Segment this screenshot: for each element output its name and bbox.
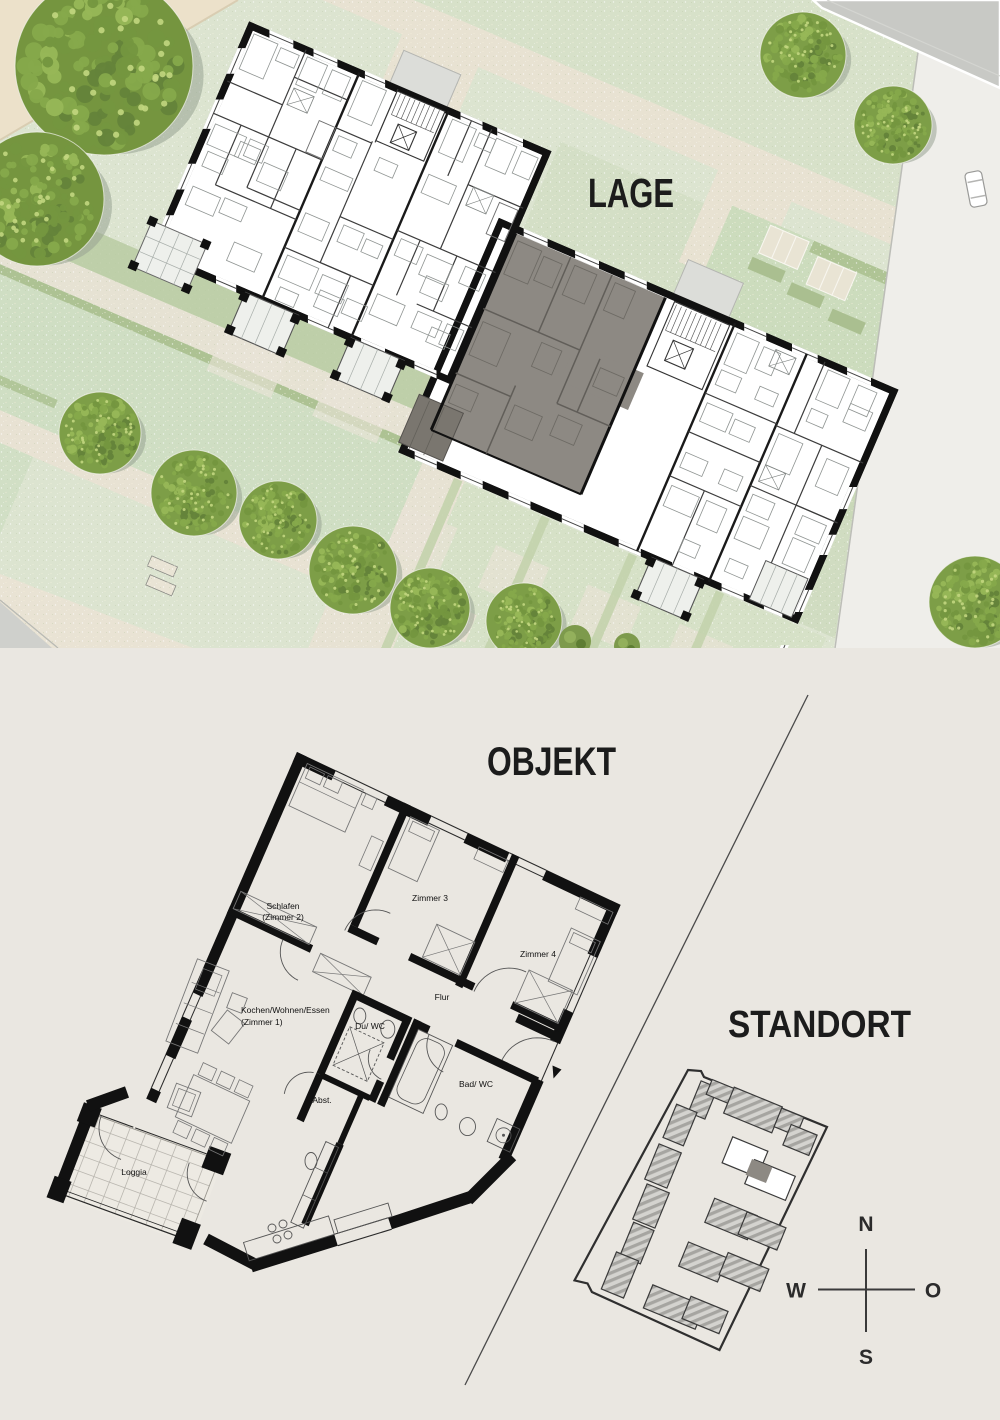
svg-text:Abst.: Abst. xyxy=(312,1095,331,1105)
svg-text:S: S xyxy=(859,1346,873,1369)
svg-text:Kochen/Wohnen/Essen: Kochen/Wohnen/Essen xyxy=(241,1005,330,1015)
svg-text:OBJEKT: OBJEKT xyxy=(487,740,616,784)
svg-text:Zimmer 3: Zimmer 3 xyxy=(412,893,448,903)
svg-text:O: O xyxy=(925,1280,941,1303)
svg-text:W: W xyxy=(786,1280,806,1303)
svg-text:Loggia: Loggia xyxy=(121,1167,147,1177)
svg-text:Bad/ WC: Bad/ WC xyxy=(459,1079,493,1089)
svg-text:Flur: Flur xyxy=(435,992,450,1002)
svg-text:Du/ WC: Du/ WC xyxy=(355,1021,385,1031)
svg-text:LAGE: LAGE xyxy=(588,170,674,216)
svg-text:STANDORT: STANDORT xyxy=(728,1004,911,1046)
svg-text:Schlafen: Schlafen xyxy=(266,901,299,911)
svg-text:(Zimmer 2): (Zimmer 2) xyxy=(262,912,304,922)
svg-text:Zimmer 4: Zimmer 4 xyxy=(520,949,556,959)
svg-text:N: N xyxy=(858,1213,873,1236)
svg-text:(Zimmer 1): (Zimmer 1) xyxy=(241,1017,283,1027)
